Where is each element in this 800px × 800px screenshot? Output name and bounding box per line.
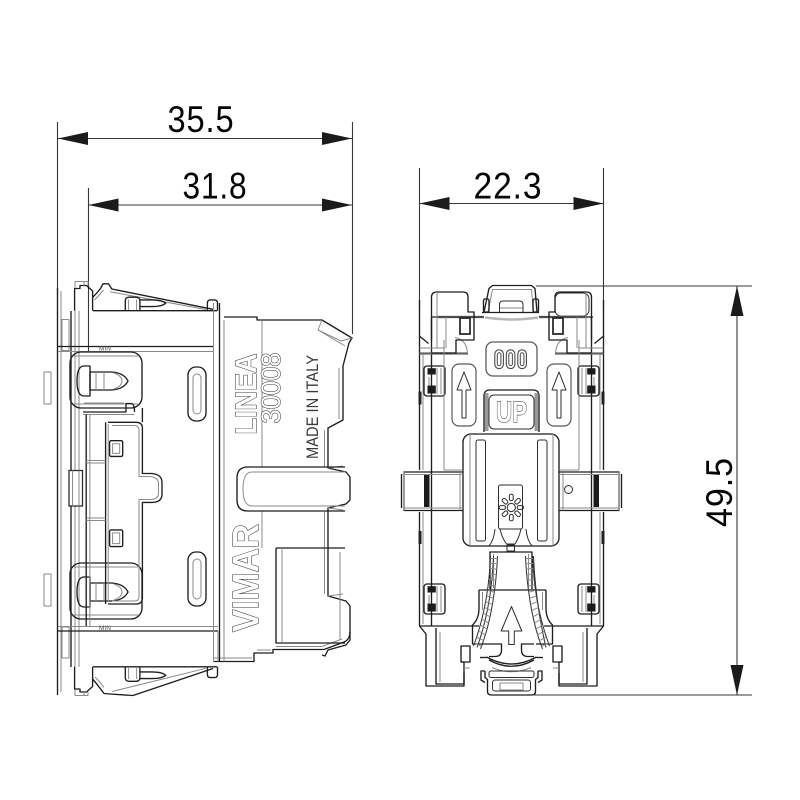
svg-text:31.8: 31.8 (183, 166, 248, 207)
svg-text:VIMAR: VIMAR (225, 524, 266, 632)
svg-text:UP: UP (496, 396, 527, 429)
svg-text:30008: 30008 (256, 353, 286, 424)
svg-text:22.3: 22.3 (474, 166, 543, 207)
svg-text:49.5: 49.5 (699, 457, 740, 527)
svg-text:35.5: 35.5 (168, 99, 235, 140)
svg-text:MIN: MIN (99, 625, 111, 632)
svg-text:MADE IN ITALY: MADE IN ITALY (303, 355, 322, 459)
